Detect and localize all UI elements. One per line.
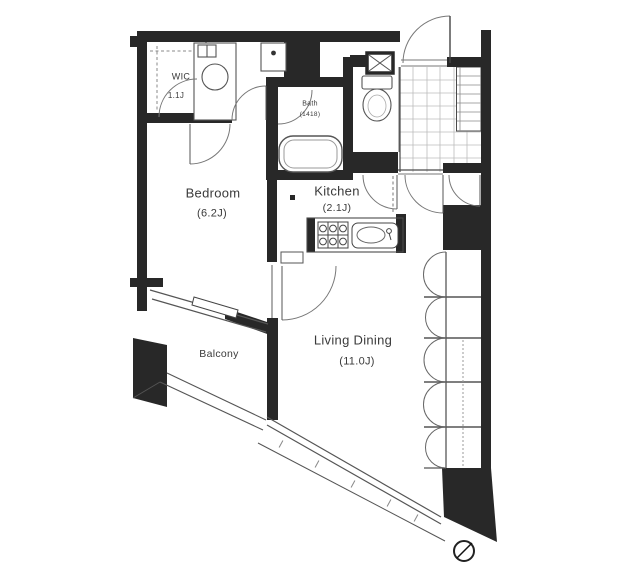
bath-label: Bath — [302, 101, 318, 108]
floor-plan-drawing — [0, 0, 640, 569]
balcony-label: Balcony — [199, 349, 238, 360]
floor-plan: WIC 1.1J Bath (1418) Bedroom (6.2J) Kitc… — [0, 0, 640, 569]
bedroom-size-label: (6.2J) — [197, 209, 227, 220]
kitchen-size-label: (2.1J) — [323, 203, 352, 214]
bath-size-label: (1418) — [300, 112, 321, 119]
wic-size-label: 1.1J — [168, 92, 184, 100]
shoe-cabinet — [457, 67, 482, 131]
pipe-space-box — [367, 53, 393, 73]
closet-doors — [424, 252, 482, 468]
kitchen-stove — [318, 222, 348, 248]
living-dining-size-label: (11.0J) — [339, 357, 375, 368]
toilet — [362, 76, 392, 121]
living-dining-label: Living Dining — [314, 334, 392, 347]
wash-basin — [194, 43, 236, 120]
bedroom-label: Bedroom — [186, 187, 241, 200]
living-dining-window — [258, 417, 445, 541]
bathtub — [279, 136, 342, 172]
compass-icon — [454, 541, 474, 561]
wic-label: WIC — [172, 73, 190, 82]
washing-machine-pan — [261, 43, 286, 71]
kitchen-label: Kitchen — [314, 185, 359, 198]
kitchen-sink — [352, 223, 398, 248]
